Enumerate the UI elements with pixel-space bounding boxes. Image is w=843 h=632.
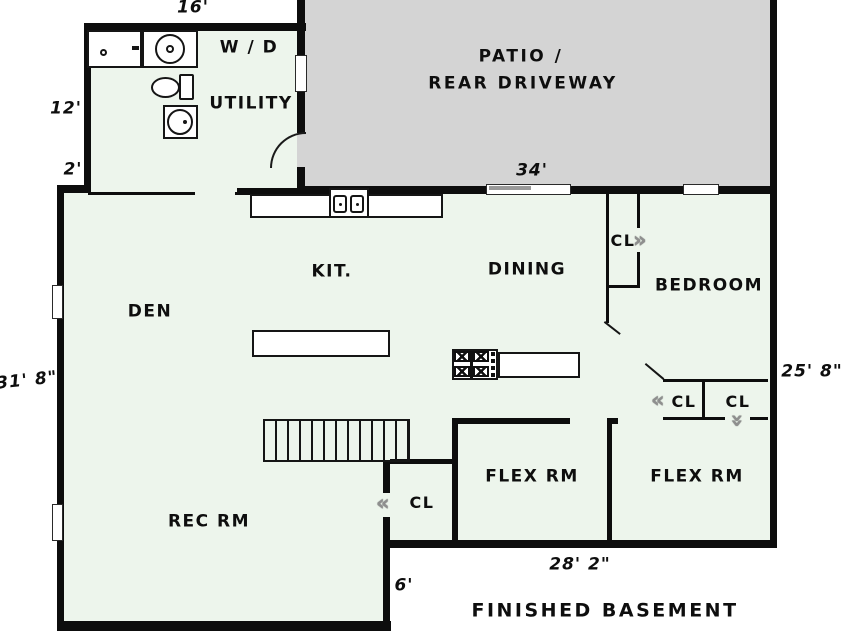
closet-label: CL (672, 394, 697, 410)
wall (57, 621, 391, 631)
window (52, 504, 63, 541)
washer-door-icon (166, 45, 174, 53)
wall (637, 252, 640, 285)
wall (383, 461, 390, 493)
dimension-bottom-width: 28' 2" (549, 557, 610, 574)
wall (663, 379, 768, 382)
laundry-sink-counter-icon (87, 30, 142, 68)
stove-knob-icon (491, 373, 495, 377)
closet-label: CL (726, 394, 751, 410)
sliding-door (486, 184, 571, 195)
counter (498, 352, 580, 378)
closet-label: CL (611, 233, 636, 249)
drain-icon (100, 49, 107, 56)
window (295, 55, 307, 92)
room-label-patio-line1: PATIO / (479, 49, 564, 66)
window (52, 285, 63, 319)
bifold-door-icon: « (651, 390, 665, 411)
burner-icon (473, 366, 489, 377)
room-label-rec-room: REC RM (168, 514, 250, 531)
bifold-door-icon: » (726, 414, 747, 428)
tub-drain-icon (183, 120, 187, 124)
wall (297, 186, 487, 194)
floor-plan: » « » « DEN KIT. DINING BEDROO (0, 0, 843, 632)
wall (383, 517, 390, 631)
drain-icon (339, 203, 342, 206)
dimension-utility-left: 12' (50, 101, 82, 118)
wall (297, 0, 305, 55)
wall (702, 379, 705, 420)
dimension-right-height: 25' 8" (781, 364, 842, 381)
wall (606, 288, 609, 323)
room-label-kitchen: KIT. (312, 264, 353, 281)
kitchen-island-counter (252, 330, 390, 357)
room-label-flex-right: FLEX RM (650, 469, 744, 486)
wall (383, 540, 777, 548)
dimension-bottom-step: 6' (394, 578, 413, 595)
wall (452, 418, 570, 424)
wall (452, 418, 458, 548)
room-label-patio-line2: REAR DRIVEWAY (428, 76, 618, 93)
wall (570, 186, 683, 194)
burner-icon (473, 351, 489, 362)
wall (770, 0, 777, 548)
wall (606, 194, 609, 288)
toilet-bowl-icon (151, 77, 180, 98)
stove-divider (470, 351, 473, 378)
wall (607, 418, 612, 548)
room-label-dining: DINING (488, 262, 566, 279)
utility-tub-icon (163, 105, 198, 139)
wall (718, 186, 777, 194)
stove-knob-icon (491, 359, 495, 363)
wall (88, 192, 195, 195)
dimension-utility-width: 16' (177, 0, 209, 17)
room-label-washer-dryer: W / D (220, 40, 278, 57)
burner-icon (454, 351, 470, 362)
kitchen-sink-icon (329, 188, 369, 218)
stove-knob-icon (491, 366, 495, 370)
wall (297, 92, 305, 133)
wall (663, 417, 725, 420)
tub-basin-icon (167, 109, 193, 135)
drain-icon (356, 203, 359, 206)
wall (297, 167, 305, 188)
washer-icon (142, 30, 198, 68)
wall (235, 192, 250, 195)
room-label-utility: UTILITY (209, 96, 292, 113)
wall (57, 185, 64, 631)
wall (637, 194, 640, 228)
rec-room-floor (57, 548, 390, 628)
faucet-icon (132, 46, 139, 50)
burner-icon (454, 366, 470, 377)
bifold-door-icon: « (376, 493, 390, 514)
dimension-left-height: 31' 8" (0, 369, 58, 392)
window (683, 184, 719, 195)
sliding-door-panel (489, 186, 531, 190)
stove-icon (452, 349, 498, 380)
room-label-bedroom: BEDROOM (655, 278, 763, 295)
toilet-tank-icon (179, 74, 194, 100)
wall (606, 285, 640, 288)
wall (750, 417, 768, 420)
plan-title: FINISHED BASEMENT (471, 602, 738, 621)
dimension-left-step: 2' (63, 162, 82, 179)
dimension-patio-width: 34' (516, 163, 548, 180)
closet-label: CL (410, 495, 435, 511)
room-label-flex-left: FLEX RM (485, 469, 579, 486)
room-label-den: DEN (128, 304, 172, 321)
stairs (263, 419, 410, 462)
stove-knob-icon (491, 352, 495, 356)
